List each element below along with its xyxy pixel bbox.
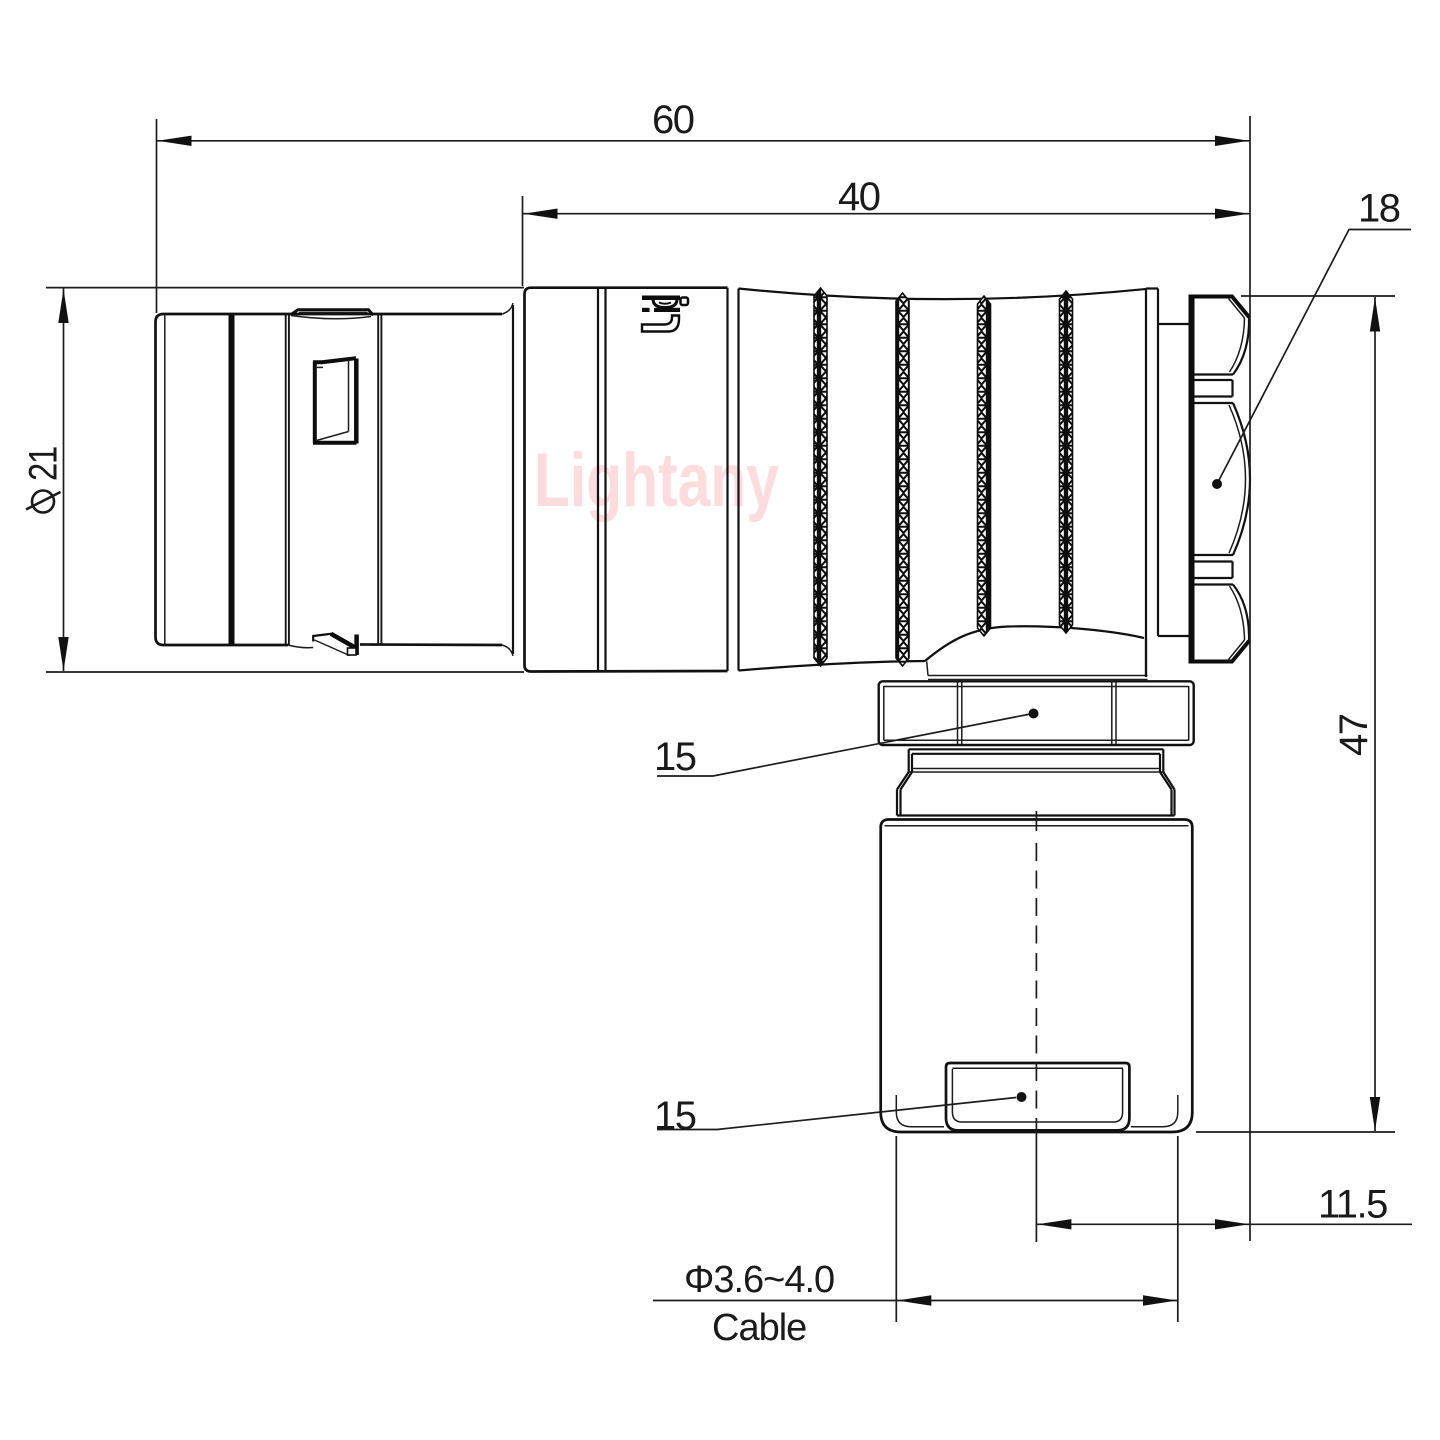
svg-text:Cable: Cable	[712, 1307, 806, 1349]
svg-text:60: 60	[652, 98, 694, 142]
svg-text:47: 47	[1332, 714, 1376, 756]
svg-text:40: 40	[838, 175, 880, 219]
svg-text:Lightany: Lightany	[534, 438, 779, 523]
svg-text:15: 15	[654, 735, 696, 779]
svg-text:Φ3.6~4.0: Φ3.6~4.0	[684, 1259, 834, 1301]
svg-text:15: 15	[654, 1094, 696, 1138]
svg-text:21: 21	[22, 447, 66, 481]
svg-text:18: 18	[1358, 187, 1400, 231]
svg-text:11.5: 11.5	[1318, 1183, 1387, 1227]
